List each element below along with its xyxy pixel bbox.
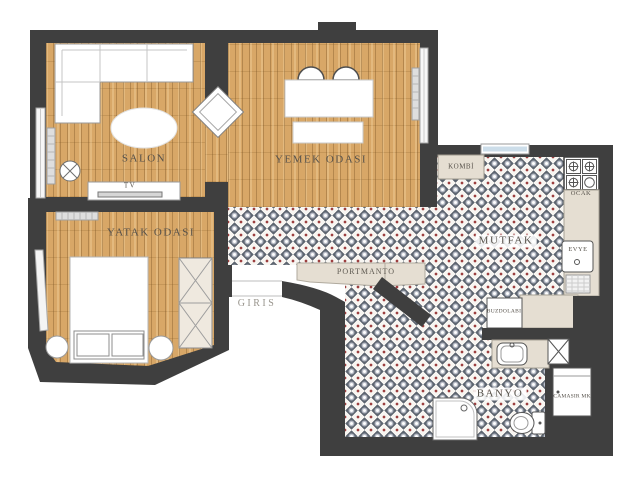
entry-threshold (232, 280, 282, 297)
furniture-layer (0, 0, 640, 482)
salon-window (36, 108, 45, 198)
entry-label: GIRIS (238, 299, 277, 309)
coffee-table (111, 108, 177, 148)
sink-label: EVYE (568, 247, 587, 254)
washer-label: CAMASIR MK (553, 394, 590, 400)
bedroom-radiator (56, 212, 98, 220)
bed (70, 257, 148, 363)
kitchen-window (481, 144, 529, 154)
tv-label: TV (124, 183, 136, 190)
dining-table (285, 80, 373, 143)
dining-label: YEMEK ODASI (275, 155, 367, 166)
washbasin (492, 340, 549, 368)
dining-radiator (412, 68, 419, 120)
stove-unit (564, 157, 599, 190)
stove-label: OCAK (571, 191, 591, 198)
armchair (193, 87, 244, 138)
boiler-label: KOMBİ (448, 164, 474, 171)
shaft-box (548, 339, 569, 364)
dining-chair (298, 67, 359, 80)
salon-label: SALON (122, 154, 166, 165)
washing-machine (553, 368, 591, 416)
toilet (510, 412, 545, 434)
bedroom-label: YATAK ODASI (107, 228, 195, 239)
sofa (55, 44, 193, 123)
shower (433, 398, 477, 440)
bedroom-window (35, 250, 48, 331)
coatrack-label: PORTMANTO (337, 268, 395, 276)
floor-lamp (60, 161, 80, 181)
kitchen-label: MUTFAK (476, 235, 537, 248)
floor-plan: SALON YEMEK ODASI YATAK ODASI MUTFAK BAN… (0, 0, 640, 482)
salon-radiator (47, 128, 55, 184)
fridge-label: BUZDOLABI (487, 309, 521, 315)
dining-window (420, 48, 428, 143)
wardrobe (179, 258, 212, 348)
bathroom-label: BANYO (474, 388, 527, 401)
